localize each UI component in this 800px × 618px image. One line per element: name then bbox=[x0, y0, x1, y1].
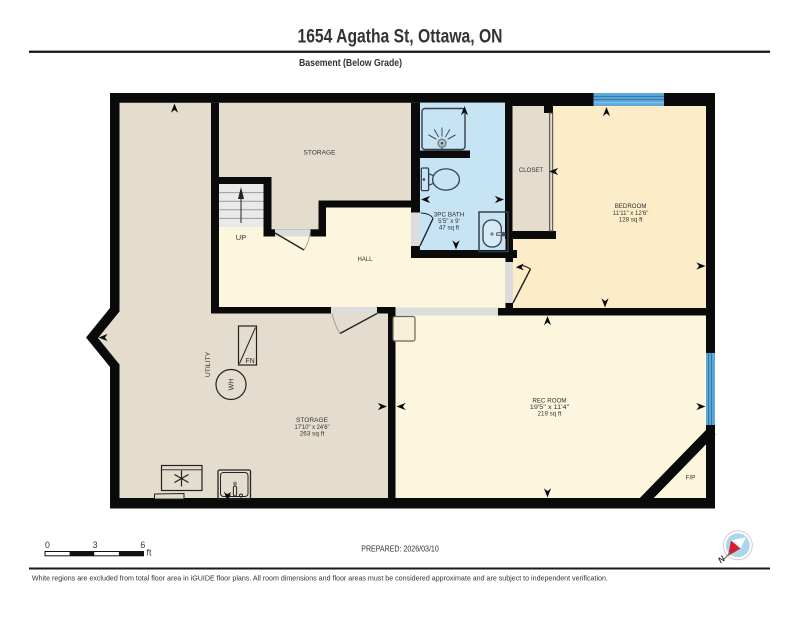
svg-text:47 sq ft: 47 sq ft bbox=[439, 224, 459, 231]
svg-text:White regions are excluded fro: White regions are excluded from total fl… bbox=[32, 573, 608, 582]
svg-text:6: 6 bbox=[140, 540, 145, 550]
svg-text:ft: ft bbox=[147, 548, 152, 558]
svg-text:STORAGE: STORAGE bbox=[304, 150, 336, 157]
svg-text:0: 0 bbox=[45, 540, 50, 550]
svg-text:CLOSET: CLOSET bbox=[519, 167, 543, 174]
svg-text:219 sq ft: 219 sq ft bbox=[538, 411, 562, 418]
svg-text:Basement (Below Grade): Basement (Below Grade) bbox=[299, 58, 402, 69]
svg-text:BEDROOM: BEDROOM bbox=[615, 203, 647, 210]
svg-text:UTILITY: UTILITY bbox=[205, 351, 212, 377]
svg-text:F/P: F/P bbox=[686, 475, 696, 482]
svg-text:UP: UP bbox=[236, 233, 246, 242]
svg-text:263 sq ft: 263 sq ft bbox=[300, 430, 325, 437]
svg-text:HALL: HALL bbox=[358, 256, 373, 263]
svg-text:3: 3 bbox=[93, 540, 98, 550]
svg-text:128 sq ft: 128 sq ft bbox=[619, 217, 643, 224]
svg-text:WH: WH bbox=[229, 379, 236, 391]
svg-text:1654 Agatha St, Ottawa, ON: 1654 Agatha St, Ottawa, ON bbox=[298, 27, 503, 48]
svg-text:PREPARED: 2026/03/10: PREPARED: 2026/03/10 bbox=[361, 545, 439, 554]
svg-text:FN: FN bbox=[245, 358, 254, 365]
